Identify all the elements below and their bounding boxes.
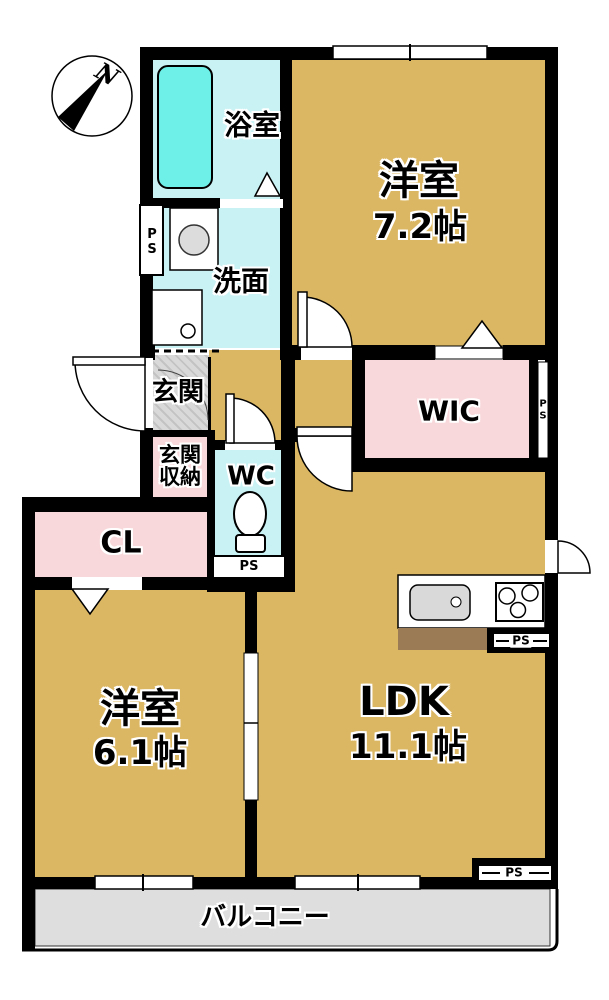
ps-label-wic: PS [538,399,549,422]
wc-door-leaf [226,394,234,443]
entrance-label: 玄関 [152,379,204,406]
stove-burner [522,585,538,601]
entrance-door-leaf [73,357,145,365]
ldk-label: LDK [359,681,449,723]
ldk-floor [295,442,545,878]
floor-plan-drawing: N [0,0,609,1000]
closet-door-opening [72,577,142,590]
bathtub [158,66,212,188]
closet-label: CL [100,527,141,559]
western-room-2-size: 6.1帖 [93,736,187,772]
service-door-opening [545,540,558,573]
western-room-2-label: 洋室 [100,688,180,730]
floor-plan: N 浴室 洗面 洋室 7.2帖 玄関 玄関収納 WC WIC CL 洋室 6.1… [0,0,609,1000]
western1-door-leaf [298,292,307,347]
western1-door-opening [301,346,352,360]
western-room-1-size: 7.2帖 [373,210,467,246]
toilet-tank [236,535,265,552]
kitchen-counter-edge [398,628,487,650]
stove-burner [511,603,526,618]
wic-label: WIC [418,396,480,425]
ps-label-wc: PS [240,560,259,574]
entrance-door-swing [75,361,145,431]
washing-machine [179,225,209,255]
ldk-size: 11.1帖 [349,730,467,766]
western-room-1-label: 洋室 [379,160,459,202]
compass: N [52,56,132,136]
balcony-label: バルコニー [200,904,329,931]
bath-door-opening [220,199,283,208]
vanity-sink [152,290,202,345]
sliding-door-western2-ldk [244,653,258,800]
wc-label: WC [227,463,275,490]
bath-label: 浴室 [224,110,280,139]
entrance-storage-label: 玄関収納 [157,444,203,488]
vanity-drain [181,324,195,338]
ps-label-washroom: PS [145,228,159,258]
service-door-swing [558,541,590,573]
stove-burner [499,588,515,604]
toilet-bowl [234,492,266,536]
ps-label-bottom: PS [503,867,524,880]
washroom-label: 洗面 [213,266,269,295]
ldk-floor-west [257,590,295,878]
kitchen-sink-drain [451,597,461,607]
ldk-door-leaf [297,427,352,436]
ps-label-kitchen: PS [510,635,531,648]
